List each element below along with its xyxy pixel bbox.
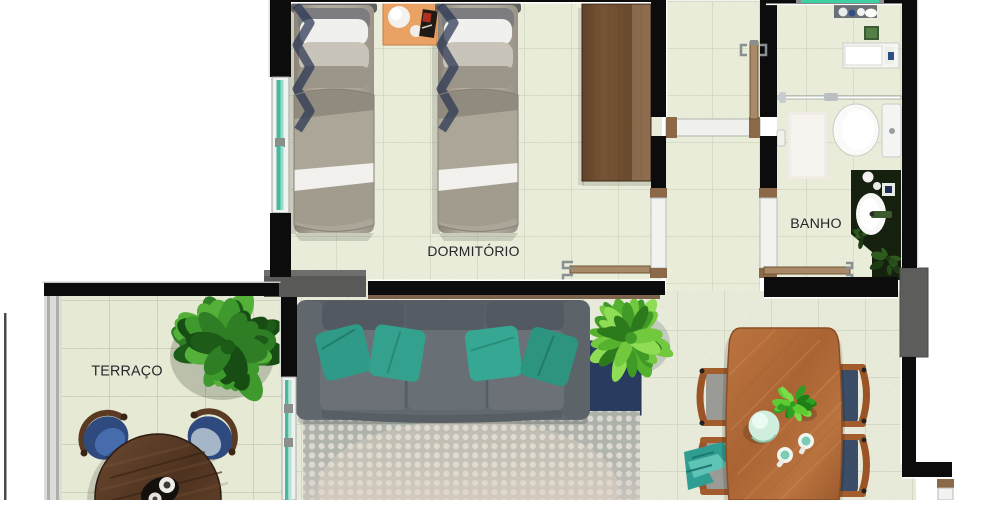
svg-text:TERRAÇO: TERRAÇO [91, 364, 162, 380]
svg-text:DORMITÓRIO: DORMITÓRIO [427, 243, 519, 259]
svg-text:BANHO: BANHO [790, 216, 841, 232]
